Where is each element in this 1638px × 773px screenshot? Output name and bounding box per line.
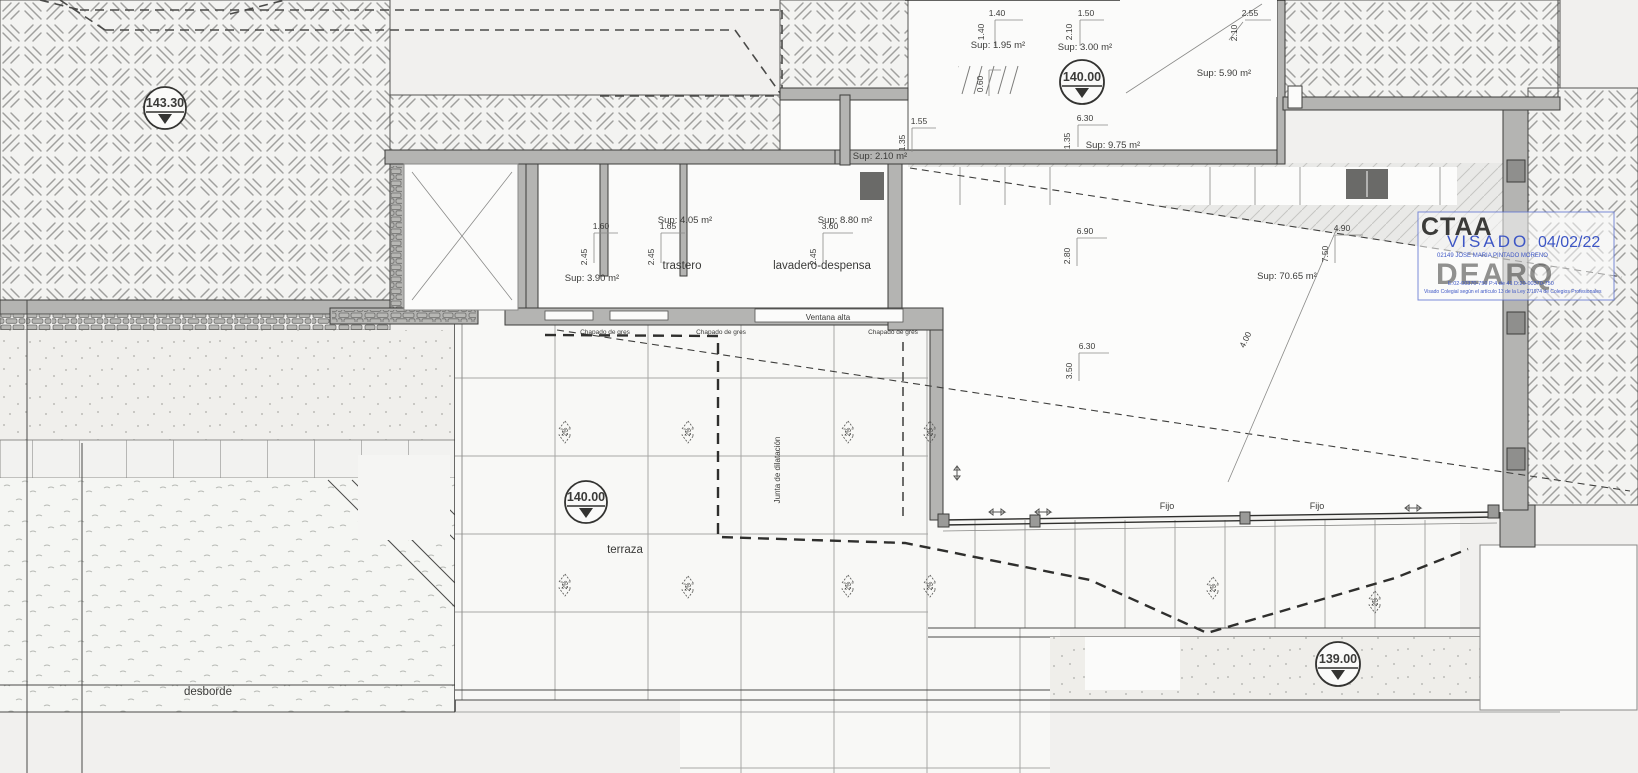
dim-label: 7.50 bbox=[1320, 245, 1330, 262]
dim-label: 1.40 bbox=[989, 8, 1006, 18]
area-label-405: Sup: 4.05 m² bbox=[658, 215, 712, 226]
gravel-deck-texture bbox=[0, 330, 455, 440]
stamp-legal: Visado Colegial según el artículo 13 de … bbox=[1424, 289, 1602, 295]
room-label-desborde: desborde bbox=[184, 686, 232, 698]
note-ventana-alta: Ventana alta bbox=[806, 313, 851, 322]
floor-plan-canvas: 1.40 1.40 1.50 2.10 6.30 1.35 2.55 2.10 … bbox=[0, 0, 1638, 773]
area-label-300: Sup: 3.00 m² bbox=[1058, 42, 1112, 53]
dim-label: 2.10 bbox=[1229, 24, 1239, 41]
roof-hatch-top-right bbox=[1283, 0, 1560, 97]
dim-label: 1.55 bbox=[911, 116, 928, 126]
stamp-action: VISADO bbox=[1447, 232, 1529, 251]
slope-label: 2% bbox=[563, 427, 569, 436]
floor-plan-drawing: 1.40 1.40 1.50 2.10 6.30 1.35 2.55 2.10 … bbox=[0, 0, 1638, 773]
dim-label: 3.50 bbox=[1064, 362, 1074, 379]
lower-stairs bbox=[1085, 637, 1180, 690]
dim-label: 4.90 bbox=[1334, 223, 1351, 233]
level-marker-lower: 139.00 bbox=[1316, 642, 1360, 686]
area-label-390: Sup: 3.90 m² bbox=[565, 273, 619, 284]
dim-label: 2.55 bbox=[1242, 8, 1259, 18]
room-label-lavadero: lavadero-despensa bbox=[773, 260, 871, 272]
dim-label: 6.90 bbox=[1077, 226, 1094, 236]
svg-text:139.00: 139.00 bbox=[1319, 652, 1357, 666]
slope-label: 2% bbox=[686, 582, 692, 591]
dim-label: 1.35 bbox=[897, 134, 907, 151]
level-marker-terrace: 140.00 bbox=[565, 481, 607, 523]
dim-label: 1.40 bbox=[976, 23, 986, 40]
dim-label: 1.60 bbox=[593, 221, 610, 231]
area-label-210: Sup: 2.10 m² bbox=[853, 151, 907, 162]
slope-label: 2% bbox=[1373, 597, 1379, 606]
dim-label: 6.30 bbox=[1077, 113, 1094, 123]
note-chapado: Chapado de gres bbox=[868, 329, 919, 336]
slope-label: 2% bbox=[1211, 583, 1217, 592]
level-marker-entry: 140.00 bbox=[1060, 60, 1104, 104]
note-fijo: Fijo bbox=[1160, 501, 1175, 511]
note-chapado: Chapado de gres bbox=[696, 329, 747, 336]
roof-hatch-left bbox=[0, 0, 390, 300]
area-label-880: Sup: 8.80 m² bbox=[818, 215, 872, 226]
svg-text:140.00: 140.00 bbox=[567, 490, 605, 504]
level-marker-roof: 143.30 bbox=[144, 87, 186, 129]
lower-gravel-strip bbox=[1050, 637, 1480, 700]
svg-text:140.00: 140.00 bbox=[1063, 70, 1101, 84]
courtyard-skylight bbox=[404, 164, 518, 310]
dim-label: 0.60 bbox=[975, 75, 985, 92]
stamp-date: 04/02/22 bbox=[1538, 234, 1600, 251]
note-junta: Junta de dilatación bbox=[773, 437, 782, 504]
dim-label: 2.10 bbox=[1064, 23, 1074, 40]
area-label-975: Sup: 9.75 m² bbox=[1086, 140, 1140, 151]
stamp-holder: 02149 JOSE MARIA PINTADO MORENO bbox=[1437, 253, 1548, 259]
kitchen-counter bbox=[908, 167, 1457, 205]
area-label-195: Sup: 1.95 m² bbox=[971, 40, 1025, 51]
slope-label: 2% bbox=[686, 427, 692, 436]
roof-hatch-entry-band bbox=[390, 95, 782, 150]
stamp-ref: E:02-00370-750 P:4 de 41 D:20-00370-750 bbox=[1448, 281, 1554, 287]
dim-label: 2.45 bbox=[579, 248, 589, 265]
area-label-7065: Sup: 70.65 m² bbox=[1257, 271, 1317, 282]
slope-label: 2% bbox=[928, 427, 934, 436]
slope-label: 2% bbox=[928, 581, 934, 590]
room-label-terraza: terraza bbox=[607, 544, 643, 556]
roof-hatch-entry-top bbox=[780, 0, 908, 88]
svg-text:143.30: 143.30 bbox=[146, 96, 184, 110]
room-label-trastero: trastero bbox=[663, 260, 702, 272]
dim-label: 1.35 bbox=[1062, 132, 1072, 149]
slope-label: 2% bbox=[563, 580, 569, 589]
utility-row-floor bbox=[526, 164, 888, 310]
dim-label: 2.80 bbox=[1062, 247, 1072, 264]
dim-label: 2.45 bbox=[646, 248, 656, 265]
area-label-590: Sup: 5.90 m² bbox=[1197, 68, 1251, 79]
slope-label: 2% bbox=[846, 427, 852, 436]
visa-stamp: DEARQ CTAA VISADO 04/02/22 02149 JOSE MA… bbox=[1418, 212, 1614, 300]
terrace-steps bbox=[358, 455, 450, 540]
slope-label: 2% bbox=[846, 581, 852, 590]
dryer bbox=[860, 172, 884, 200]
note-chapado: Chapado de gres bbox=[580, 329, 631, 336]
note-fijo: Fijo bbox=[1310, 501, 1325, 511]
dim-label: 1.50 bbox=[1078, 8, 1095, 18]
dim-label: 6.30 bbox=[1079, 341, 1096, 351]
south-deck-band bbox=[928, 520, 1480, 637]
